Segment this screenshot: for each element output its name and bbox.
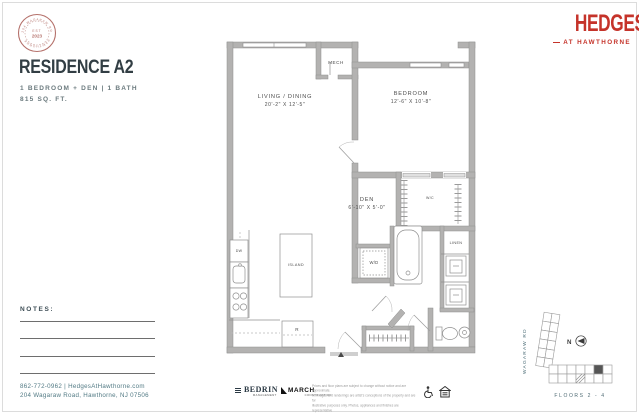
contact-phone-web: 862-772-0962 | HedgesAtHawthorne.com (20, 383, 145, 390)
wheelchair-accessible-icon (423, 386, 434, 398)
notes-line (20, 338, 155, 339)
wd-label: W/D (369, 260, 378, 265)
linen-label: LINEN (450, 241, 463, 245)
hedges-logo: HEDGES AT HAWTHORNE (553, 10, 631, 46)
den-dims: 6'-10" X 5'-0" (348, 205, 385, 211)
notes-label: NOTES: (20, 306, 54, 313)
contact-address: 204 Wagaraw Road, Hawthorne, NJ 07506 (20, 392, 149, 399)
bedrin-bars-icon (235, 387, 241, 394)
toilet-tank (436, 327, 442, 340)
disclaimer-line: All images and renderings are artist's c… (312, 394, 420, 404)
range (230, 288, 248, 318)
seal-arc-bottom: HAWTHORNE (23, 38, 51, 48)
bedroom-label: BEDROOM (394, 91, 429, 97)
legal-disclaimer: Prices and floor plans are subject to ch… (312, 384, 420, 414)
refrigerator (282, 321, 313, 347)
bedrin-sub: MANAGEMENT (253, 394, 269, 397)
svg-text:HAWTHORNE: HAWTHORNE (23, 38, 51, 48)
seal-year: 2023 (32, 34, 43, 39)
unit-specs: 1 BEDROOM + DEN | 1 BATH (20, 85, 138, 92)
page-title: RESIDENCE A2 (19, 57, 133, 79)
disclaimer-line: Prices and floor plans are subject to ch… (312, 384, 420, 394)
notes-line (20, 356, 155, 357)
wc-label: W/C (426, 196, 434, 200)
living-room-label: LIVING / DINING (258, 94, 313, 100)
notes-line (20, 321, 155, 322)
keyplan: WAGARAW RD N (522, 312, 612, 399)
living-room-dims: 20'-2" X 12'-5" (265, 102, 306, 108)
building-outline (536, 312, 612, 383)
disclaimer-line: illustrative purposes only. Photos, appl… (312, 404, 420, 414)
street-label: WAGARAW RD (522, 328, 528, 374)
plan-walls (227, 42, 475, 353)
dw-label: DW (236, 249, 243, 253)
bedrin-logo: BEDRIN MANAGEMENT (243, 385, 279, 400)
march-flag-icon (281, 387, 287, 394)
footer-icons (423, 386, 451, 398)
notes-line (20, 373, 155, 374)
room-labels: LIVING / DINING 20'-2" X 12'-5" BEDROOM … (236, 60, 463, 332)
brand-name: HEDGES (575, 10, 631, 38)
seal-est: EST (32, 29, 41, 33)
floors-label: FLOORS 2 - 4 (554, 393, 605, 399)
mech-label: MECH (328, 60, 344, 65)
den-label: DEN (360, 197, 374, 203)
unit-area: 815 SQ. FT. (20, 96, 68, 103)
toilet-bowl (443, 328, 458, 340)
unit-location-marker (594, 365, 603, 374)
north-compass-icon (576, 336, 586, 346)
est-2023-seal: 204 WAGARAW RD HAWTHORNE EST 2023 (19, 15, 56, 52)
bedroom-dims: 12'-6" X 10'-8" (391, 99, 432, 105)
north-label: N (567, 339, 572, 346)
bedrin-name: BEDRIN (243, 385, 279, 394)
brand-rule (553, 42, 560, 43)
fridge-label: R (295, 327, 299, 332)
brand-tagline: AT HAWTHORNE (563, 39, 631, 46)
equal-housing-icon (439, 386, 451, 398)
floorplan-flyer-page: 204 WAGARAW RD HAWTHORNE EST 2023 (0, 0, 639, 414)
kitchen-fixtures (229, 230, 313, 347)
entry-threshold (330, 352, 358, 357)
island-label: ISLAND (288, 263, 304, 267)
